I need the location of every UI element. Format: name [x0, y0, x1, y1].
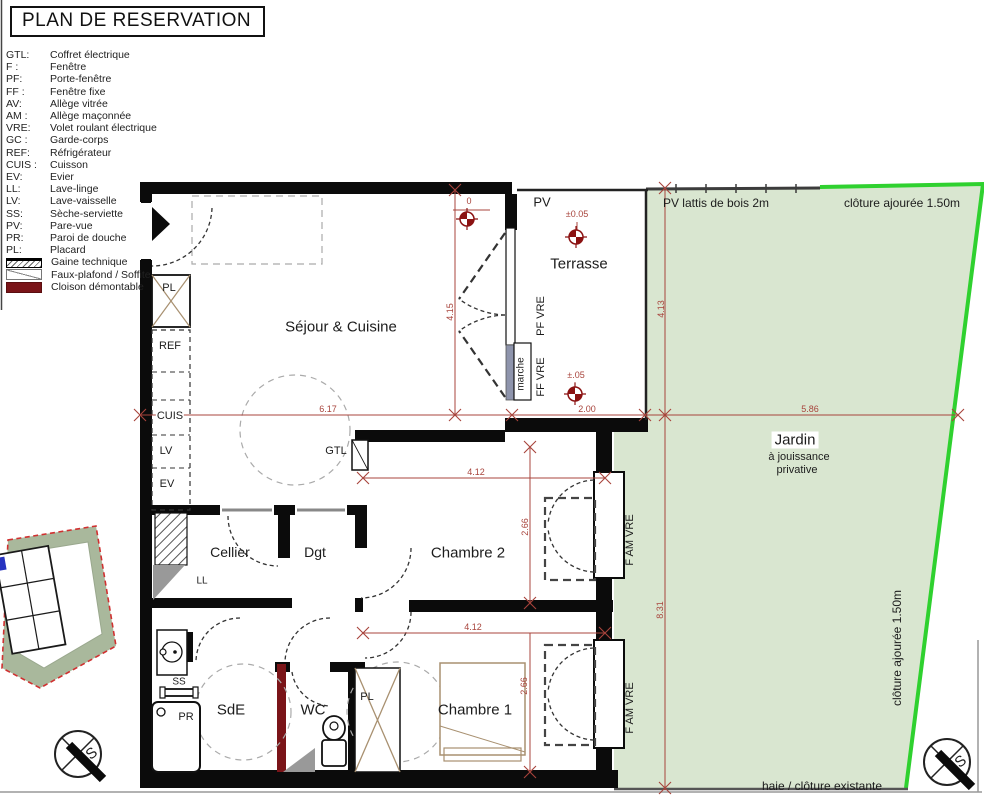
legend-swatch-cloison: Cloison démontable — [6, 281, 157, 293]
room-label-terrasse: Terrasse — [550, 256, 608, 273]
garden — [614, 184, 983, 789]
label-lv: LV — [160, 445, 173, 457]
legend-item: PR:Paroi de douche — [6, 232, 157, 244]
legend-item: SS:Sèche-serviette — [6, 208, 157, 220]
window-f-am-vre-lower — [594, 640, 624, 748]
dim-jardin-w: 5.86 — [801, 404, 819, 414]
dim-sejour-h: 4.15 — [445, 303, 455, 321]
reservation-plan: S S PLAN DE RESERVATION GTL:Coffret élec… — [0, 0, 984, 800]
label-pl-bottom: PL — [360, 691, 373, 703]
room-label-jardin: Jardin — [772, 432, 819, 449]
cloison-swatch-icon — [6, 282, 42, 293]
level-terrasse-high: ±0.05 — [566, 209, 588, 219]
soffite-outline — [192, 196, 322, 264]
door-swings — [152, 208, 594, 740]
jardin-subtitle-1: à jouissance — [768, 451, 829, 463]
legend-item: AV:Allège vitrée — [6, 98, 157, 110]
label-f-am-vre-lower: F AM VRE — [624, 682, 636, 733]
room-label-wc: WC — [301, 702, 326, 719]
legend-item: LL:Lave-linge — [6, 183, 157, 195]
label-ss: SS — [172, 677, 185, 688]
label-gtl: GTL — [325, 445, 346, 457]
label-marche: marche — [516, 357, 527, 390]
towel-warmer — [163, 689, 195, 696]
label-ref: REF — [159, 340, 181, 352]
annotation-cloture-right: clôture ajourée 1.50m — [890, 590, 904, 706]
legend-item: EV:Evier — [6, 171, 157, 183]
label-pf-vre: PF VRE — [535, 296, 547, 336]
level-terrasse-low: ±.05 — [567, 370, 584, 380]
room-label-sde: SdE — [217, 702, 245, 719]
legend-item: GC :Garde-corps — [6, 134, 157, 146]
room-label-chambre1: Chambre 1 — [438, 702, 512, 719]
label-pv: PV — [533, 195, 550, 210]
level-zero: 0 — [466, 196, 471, 206]
dim-chambre1-h: 2.66 — [519, 677, 529, 695]
legend-item: PL:Placard — [6, 244, 157, 256]
window-f-am-vre-upper — [594, 472, 624, 578]
legend-item: F :Fenêtre — [6, 61, 157, 73]
soffite-swatch-icon — [6, 269, 42, 280]
dim-chambre2-h: 2.66 — [520, 518, 530, 536]
dim-chambre2-w: 4.12 — [467, 467, 485, 477]
dim-chambre1-w: 4.12 — [464, 622, 482, 632]
jardin-subtitle-2: privative — [777, 464, 818, 476]
legend-item: FF :Fenêtre fixe — [6, 86, 157, 98]
label-cuis: CUIS — [156, 410, 184, 422]
legend-item: CUIS :Cuisson — [6, 159, 157, 171]
window-pf-vre — [506, 228, 515, 345]
dim-jardin-h-bottom: 8.31 — [655, 601, 665, 619]
terrace-door-leaves — [459, 233, 505, 397]
gaine-swatch-icon — [6, 258, 42, 268]
annotation-haie: haie / clôture existante — [762, 779, 882, 793]
legend-item: LV:Lave-vaisselle — [6, 195, 157, 207]
legend-item: VRE:Volet roulant électrique — [6, 122, 157, 134]
legend-item: PV:Pare-vue — [6, 220, 157, 232]
toilet — [323, 716, 345, 740]
label-pl-top: PL — [162, 282, 175, 294]
room-label-sejour: Séjour & Cuisine — [285, 319, 397, 336]
room-label-dgt: Dgt — [304, 544, 326, 560]
site-plan-inset — [0, 526, 116, 688]
legend-swatch-gaine: Gaine technique — [6, 256, 157, 268]
label-ev: EV — [160, 478, 175, 490]
dim-terrasse-w: 2.00 — [578, 404, 596, 414]
page-title-text: PLAN DE RESERVATION — [22, 10, 251, 31]
legend-item: PF:Porte-fenêtre — [6, 73, 157, 85]
dim-jardin-h-top: 4.13 — [656, 300, 666, 318]
label-ff-vre: FF VRE — [535, 357, 547, 396]
room-label-cellier: Cellier — [210, 544, 250, 560]
room-label-chambre2: Chambre 2 — [431, 545, 505, 562]
label-ll: LL — [196, 576, 207, 587]
legend-item: REF:Réfrigérateur — [6, 147, 157, 159]
legend-swatch-soffite: Faux-plafond / Soffite — [6, 269, 157, 281]
legend-item: GTL:Coffret électrique — [6, 49, 157, 61]
page-title: PLAN DE RESERVATION — [10, 6, 265, 37]
annotation-pv-lattis: PV lattis de bois 2m — [663, 196, 769, 210]
label-pr: PR — [178, 711, 193, 723]
compass-icon: S — [924, 739, 972, 787]
compass-icon: S — [55, 731, 103, 779]
annotation-cloture-top: clôture ajourée 1.50m — [844, 196, 960, 210]
legend: GTL:Coffret électrique F :Fenêtre PF:Por… — [6, 49, 157, 293]
legend-item: AM :Allège maçonnée — [6, 110, 157, 122]
dim-sejour-w: 6.17 — [319, 404, 337, 414]
label-f-am-vre-upper: F AM VRE — [624, 514, 636, 565]
